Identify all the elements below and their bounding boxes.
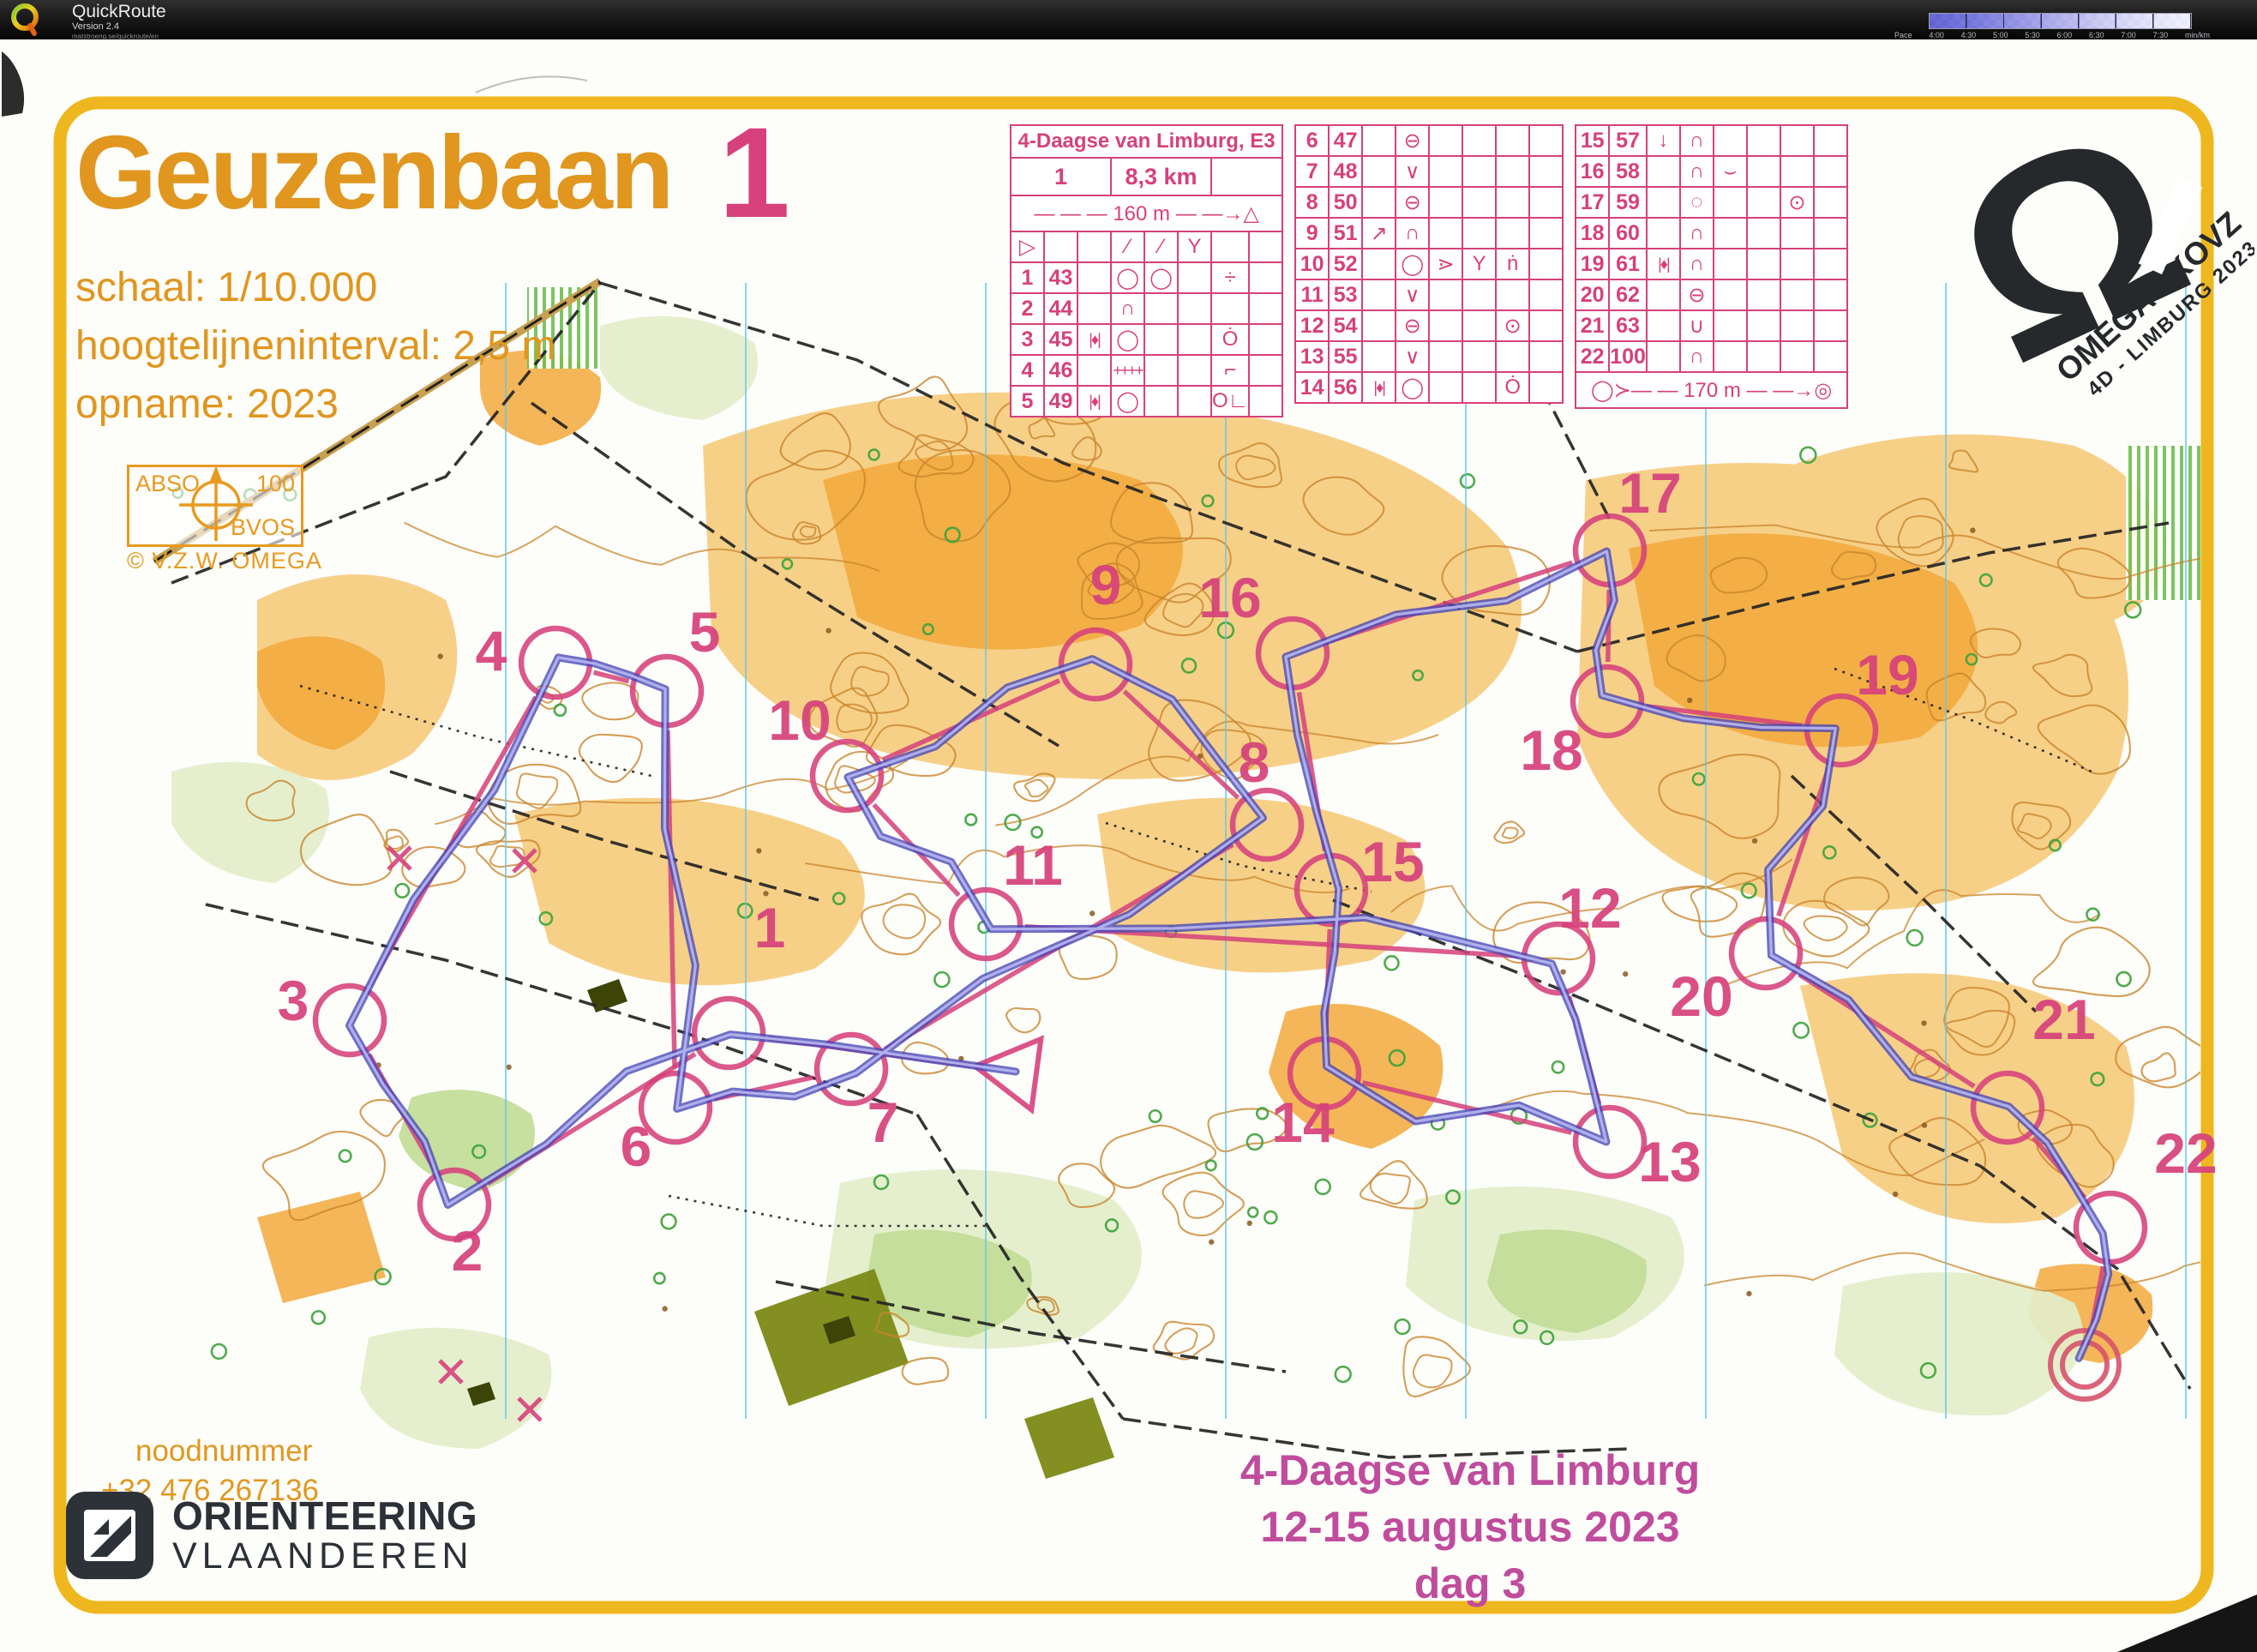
cd-cell: ∩ <box>1680 249 1714 279</box>
cd-cell <box>1780 279 1814 310</box>
cd-cell: 63 <box>1609 310 1647 341</box>
cd-cell <box>1249 262 1282 293</box>
cd-cell: 45 <box>1044 324 1077 355</box>
cd-cell <box>1144 324 1178 355</box>
cd-cell: 44 <box>1044 293 1077 324</box>
cd-cell <box>1529 372 1563 403</box>
pace-gradient-bar[interactable] <box>1929 13 2192 29</box>
cd-cell: ▷ <box>1011 231 1044 262</box>
cd-cell <box>1529 249 1563 279</box>
pace-tick-6: 7:00 <box>2121 31 2136 39</box>
cd-cell: ◯ <box>1111 262 1144 293</box>
cd-cell <box>1429 279 1462 310</box>
pace-tick-labels: Pace4:004:305:005:306:006:307:007:30min/… <box>1894 31 2210 39</box>
cd-cell: ◯ <box>1396 372 1429 403</box>
cd-cell: ∨ <box>1396 156 1429 187</box>
cd-cell: ÷ <box>1211 262 1249 293</box>
cd-cell <box>1496 279 1529 310</box>
cd-cell <box>1780 341 1814 372</box>
cd-cell: 8 <box>1295 187 1329 218</box>
cd-cell <box>1747 156 1780 187</box>
cd-cell: 54 <box>1329 310 1362 341</box>
cd-cell <box>1249 324 1282 355</box>
cd-cell: ↗ <box>1362 218 1396 249</box>
cd-cell <box>1429 310 1462 341</box>
cd-cell <box>1178 386 1211 417</box>
cd-cell: Y <box>1178 231 1211 262</box>
cd-cell: ◯ <box>1396 249 1429 279</box>
cd-cell: 22 <box>1576 341 1609 372</box>
cd-cell: 20 <box>1576 279 1609 310</box>
cd-cell <box>1814 310 1847 341</box>
cd-cell: 16 <box>1576 156 1609 187</box>
cd-cell: |♦| <box>1077 386 1111 417</box>
cd-cell: ⌣ <box>1714 156 1747 187</box>
cd-cell: 4-Daagse van Limburg, E3 <box>1011 125 1282 158</box>
cd-cell <box>1647 279 1680 310</box>
cd-cell: Y <box>1462 249 1496 279</box>
cd-cell <box>1178 262 1211 293</box>
cd-cell <box>1362 187 1396 218</box>
control-number-21: 21 <box>2032 988 2095 1051</box>
control-number-6: 6 <box>621 1114 652 1178</box>
cd-cell <box>1077 262 1111 293</box>
org-logo-line2: VLAANDEREN <box>172 1537 477 1576</box>
pace-tick-4: 6:00 <box>2057 31 2073 39</box>
cd-cell: ++++ <box>1111 355 1144 386</box>
cd-cell <box>1178 324 1211 355</box>
cd-cell <box>1747 249 1780 279</box>
cd-cell: 57 <box>1609 125 1647 156</box>
cd-cell <box>1462 187 1496 218</box>
cd-cell <box>1814 125 1847 156</box>
cd-cell <box>1362 279 1396 310</box>
map-canvas[interactable]: 12345678910111213141516171819202122 Geuz… <box>0 39 2257 1652</box>
cd-cell <box>1747 187 1780 218</box>
cd-cell <box>1814 187 1847 218</box>
cd-cell: 60 <box>1609 218 1647 249</box>
cd-cell <box>1077 293 1111 324</box>
cd-cell: ◯ <box>1144 262 1178 293</box>
cd-cell: ⊙ <box>1496 310 1529 341</box>
cd-cell <box>1747 310 1780 341</box>
control-number-13: 13 <box>1638 1130 1701 1193</box>
cd-cell: 19 <box>1576 249 1609 279</box>
cd-cell: Ȯ <box>1211 324 1249 355</box>
cd-cell <box>1429 218 1462 249</box>
cd-cell: ⌐ <box>1211 355 1249 386</box>
pace-unit: min/km <box>2185 31 2210 39</box>
cd-cell: ∩ <box>1396 218 1429 249</box>
cd-cell: ◯≻— — 170 m — —→◎ <box>1576 372 1847 408</box>
cd-cell: 12 <box>1295 310 1329 341</box>
cd-cell: ◯ <box>1111 324 1144 355</box>
cd-cell: ◯ <box>1111 386 1144 417</box>
cd-cell: 18 <box>1576 218 1609 249</box>
titlebar: QuickRoute Version 2.4 matstroeng.se/qui… <box>0 0 2257 39</box>
cd-cell: — — — 160 m — —→△ <box>1011 195 1282 231</box>
control-number-8: 8 <box>1239 730 1270 794</box>
cd-cell <box>1462 341 1496 372</box>
cd-cell <box>1429 372 1462 403</box>
cd-cell <box>1714 279 1747 310</box>
pace-tick-1: 4:30 <box>1961 31 1977 39</box>
cd-cell: ∪ <box>1680 310 1714 341</box>
cd-cell <box>1780 156 1814 187</box>
control-number-11: 11 <box>1003 833 1063 897</box>
cd-cell <box>1211 158 1282 195</box>
control-description-sheet: 4-Daagse van Limburg, E318,3 km— — — 160… <box>1010 124 1848 418</box>
cd-cell <box>1462 279 1496 310</box>
pace-tick-0: 4:00 <box>1929 31 1944 39</box>
cd-cell <box>1814 279 1847 310</box>
control-number-5: 5 <box>689 600 721 664</box>
cd-cell: Ȯ <box>1496 372 1529 403</box>
map-title: Geuzenbaan <box>75 120 671 225</box>
cd-cell: ◌ <box>1680 187 1714 218</box>
cd-cell: 8,3 km <box>1111 158 1211 195</box>
cd-cell <box>1211 293 1249 324</box>
compass-icon <box>169 464 263 546</box>
course-number: 1 <box>718 108 789 237</box>
cd-cell: 14 <box>1295 372 1329 403</box>
cd-cell: |♦| <box>1647 249 1680 279</box>
cd-cell <box>1249 386 1282 417</box>
cd-cell <box>1529 279 1563 310</box>
map-header-block: Geuzenbaan 1 schaal: 1/10.000 hoogtelijn… <box>75 120 790 434</box>
cd-cell: 47 <box>1329 125 1362 156</box>
control-number-2: 2 <box>452 1219 483 1283</box>
control-descriptions-table-1: 4-Daagse van Limburg, E318,3 km— — — 160… <box>1010 124 1283 418</box>
cd-cell <box>1529 341 1563 372</box>
cd-cell <box>1529 187 1563 218</box>
cd-cell <box>1496 125 1529 156</box>
cd-cell <box>1496 218 1529 249</box>
control-number-3: 3 <box>278 969 309 1032</box>
event-footer: 4-Daagse van Limburg 12-15 augustus 2023… <box>1136 1442 1804 1612</box>
cd-cell <box>1714 310 1747 341</box>
cd-cell <box>1814 249 1847 279</box>
cd-cell <box>1211 231 1249 262</box>
cd-cell: 100 <box>1609 341 1647 372</box>
map-survey-year: opname: 2023 <box>75 375 790 434</box>
scan-edge-mark <box>2 51 24 117</box>
cd-cell <box>1144 355 1178 386</box>
cd-cell <box>1529 310 1563 341</box>
cd-cell: ⊖ <box>1680 279 1714 310</box>
cd-cell <box>1249 355 1282 386</box>
cd-cell: ⊖ <box>1396 125 1429 156</box>
cd-cell <box>1362 341 1396 372</box>
cd-cell <box>1814 341 1847 372</box>
cd-cell <box>1714 218 1747 249</box>
emergency-label: noodnummer <box>101 1432 319 1471</box>
cd-cell: 61 <box>1609 249 1647 279</box>
orienteering-vlaanderen-logo: ORIENTEERING VLAANDEREN <box>64 1490 477 1581</box>
cd-cell: 5 <box>1011 386 1044 417</box>
control-number-17: 17 <box>1618 461 1681 525</box>
cd-cell <box>1780 218 1814 249</box>
cd-cell <box>1362 249 1396 279</box>
cd-cell <box>1747 125 1780 156</box>
cd-cell: 55 <box>1329 341 1362 372</box>
cd-cell: ⁄ <box>1111 231 1144 262</box>
cd-cell: 13 <box>1295 341 1329 372</box>
cd-cell: 58 <box>1609 156 1647 187</box>
cd-cell <box>1814 218 1847 249</box>
quickroute-logo-icon <box>8 2 44 38</box>
cd-cell: ⊖ <box>1396 187 1429 218</box>
control-descriptions-table-2: 647⊖748∨850⊖951↗∩1052◯⋗Yṅ1153∨1254⊖⊙1355… <box>1294 124 1564 404</box>
cd-cell: 15 <box>1576 125 1609 156</box>
cd-cell: 1 <box>1011 158 1111 195</box>
app-name: QuickRoute <box>72 3 166 21</box>
control-number-16: 16 <box>1198 566 1261 629</box>
cd-cell <box>1496 187 1529 218</box>
cd-cell: 50 <box>1329 187 1362 218</box>
cd-cell <box>1647 156 1680 187</box>
control-number-9: 9 <box>1090 553 1122 616</box>
app-version: Version 2.4 <box>72 22 166 33</box>
cd-cell: 43 <box>1044 262 1077 293</box>
cd-cell: ∩ <box>1680 218 1714 249</box>
pace-legend: Pace4:004:305:005:306:006:307:007:30min/… <box>1929 13 2190 39</box>
cd-cell: ∨ <box>1396 279 1429 310</box>
cd-cell <box>1780 249 1814 279</box>
cd-cell <box>1429 187 1462 218</box>
terrain-layer <box>154 257 2257 1479</box>
cd-cell: 3 <box>1011 324 1044 355</box>
cd-cell <box>1462 156 1496 187</box>
cd-cell <box>1747 279 1780 310</box>
control-number-7: 7 <box>867 1090 899 1154</box>
control-number-14: 14 <box>1271 1090 1335 1154</box>
cd-cell <box>1429 125 1462 156</box>
cd-cell: 2 <box>1011 293 1044 324</box>
cd-cell: ∩ <box>1111 293 1144 324</box>
cd-cell <box>1462 125 1496 156</box>
cd-cell <box>1144 293 1178 324</box>
control-number-4: 4 <box>476 619 507 682</box>
cd-cell: ∩ <box>1680 156 1714 187</box>
cd-cell: 49 <box>1044 386 1077 417</box>
cd-cell: |♦| <box>1362 372 1396 403</box>
cd-cell <box>1362 125 1396 156</box>
control-number-19: 19 <box>1856 643 1918 706</box>
cd-cell <box>1249 293 1282 324</box>
cd-cell <box>1077 231 1111 262</box>
cd-cell <box>1496 156 1529 187</box>
pace-tick-3: 5:30 <box>2025 31 2040 39</box>
control-number-10: 10 <box>768 688 831 752</box>
cd-cell <box>1178 293 1211 324</box>
event-name: 4-Daagse van Limburg <box>1136 1442 1804 1499</box>
cd-cell <box>1714 249 1747 279</box>
cd-cell: 9 <box>1295 218 1329 249</box>
cd-cell: 10 <box>1295 249 1329 279</box>
cd-cell <box>1647 310 1680 341</box>
pace-tick-2: 5:00 <box>1993 31 2008 39</box>
cd-cell <box>1044 231 1077 262</box>
cd-cell: ∩ <box>1680 341 1714 372</box>
cd-cell <box>1714 341 1747 372</box>
cd-cell <box>1647 218 1680 249</box>
cd-cell <box>1714 187 1747 218</box>
omega-club-logo: Ω OMEGA - KOVZ 4D - LIMBURG 2023 <box>1924 99 2254 411</box>
cd-cell: 21 <box>1576 310 1609 341</box>
cd-cell: |♦| <box>1077 324 1111 355</box>
quickroute-window: QuickRoute Version 2.4 matstroeng.se/qui… <box>0 0 2257 1652</box>
pace-segment-dividers <box>1930 14 2191 28</box>
cd-cell <box>1647 341 1680 372</box>
cd-cell: ⁄ <box>1144 231 1178 262</box>
cd-cell: ⊖ <box>1396 310 1429 341</box>
cd-cell: 17 <box>1576 187 1609 218</box>
cd-cell <box>1529 125 1563 156</box>
copyright-line: © V.Z.W. OMEGA <box>127 548 322 574</box>
cd-cell <box>1647 187 1680 218</box>
map-scale: schaal: 1/10.000 <box>75 259 790 317</box>
cd-cell <box>1462 310 1496 341</box>
pace-prefix: Pace <box>1894 31 1912 39</box>
org-logo-line1: ORIENTEERING <box>172 1495 477 1536</box>
cd-cell: 62 <box>1609 279 1647 310</box>
control-number-22: 22 <box>2154 1121 2217 1185</box>
cd-cell: ∨ <box>1396 341 1429 372</box>
event-day: dag 3 <box>1136 1555 1804 1612</box>
control-descriptions-table-3: 1557↓∩1658∩⌣1759◌⊙1860∩1961|♦|∩2062⊖2163… <box>1575 124 1848 409</box>
cd-cell: ∩ <box>1680 125 1714 156</box>
pace-tick-5: 6:30 <box>2089 31 2104 39</box>
control-number-15: 15 <box>1361 830 1424 893</box>
cd-cell <box>1780 125 1814 156</box>
cd-cell: 4 <box>1011 355 1044 386</box>
cd-cell <box>1714 125 1747 156</box>
cd-cell: 7 <box>1295 156 1329 187</box>
control-number-20: 20 <box>1670 964 1732 1028</box>
cd-cell <box>1747 218 1780 249</box>
cd-cell <box>1362 156 1396 187</box>
cd-cell: 48 <box>1329 156 1362 187</box>
control-number-18: 18 <box>1520 718 1582 782</box>
cd-cell <box>1178 355 1211 386</box>
scan-scratch <box>476 76 587 93</box>
cd-cell <box>1747 341 1780 372</box>
cd-cell: 53 <box>1329 279 1362 310</box>
cd-cell <box>1529 156 1563 187</box>
cd-cell: O∟ <box>1211 386 1249 417</box>
event-dates: 12-15 augustus 2023 <box>1136 1499 1804 1555</box>
cd-cell: ṅ <box>1496 249 1529 279</box>
cd-cell: ⋗ <box>1429 249 1462 279</box>
cd-cell: 6 <box>1295 125 1329 156</box>
app-titles: QuickRoute Version 2.4 matstroeng.se/qui… <box>72 3 166 40</box>
cd-cell <box>1814 156 1847 187</box>
club-accreditation-box: ABSO 100 BVOS <box>127 465 303 547</box>
cd-cell <box>1429 341 1462 372</box>
cd-cell: 51 <box>1329 218 1362 249</box>
cd-cell: 1 <box>1011 262 1044 293</box>
map-contour-interval: hoogtelijneninterval: 2,5 m <box>75 317 790 375</box>
cd-cell <box>1249 231 1282 262</box>
cd-cell: 11 <box>1295 279 1329 310</box>
cd-cell <box>1362 310 1396 341</box>
pace-tick-7: 7:30 <box>2153 31 2169 39</box>
map-meta: schaal: 1/10.000 hoogtelijneninterval: 2… <box>75 259 790 434</box>
cd-cell <box>1496 341 1529 372</box>
cd-cell <box>1429 156 1462 187</box>
cd-cell <box>1077 355 1111 386</box>
cd-cell: 59 <box>1609 187 1647 218</box>
app-url: matstroeng.se/quickroute/en <box>72 33 166 40</box>
control-number-1: 1 <box>754 896 786 959</box>
control-number-12: 12 <box>1558 876 1621 940</box>
cd-cell: ↓ <box>1647 125 1680 156</box>
cd-cell <box>1529 218 1563 249</box>
cd-cell: 56 <box>1329 372 1362 403</box>
cd-cell: 52 <box>1329 249 1362 279</box>
cd-cell <box>1462 372 1496 403</box>
cd-cell: 46 <box>1044 355 1077 386</box>
cd-cell: ⊙ <box>1780 187 1814 218</box>
orienteering-vlaanderen-icon <box>64 1490 155 1581</box>
cd-cell <box>1144 386 1178 417</box>
cd-cell <box>1780 310 1814 341</box>
cd-cell <box>1462 218 1496 249</box>
